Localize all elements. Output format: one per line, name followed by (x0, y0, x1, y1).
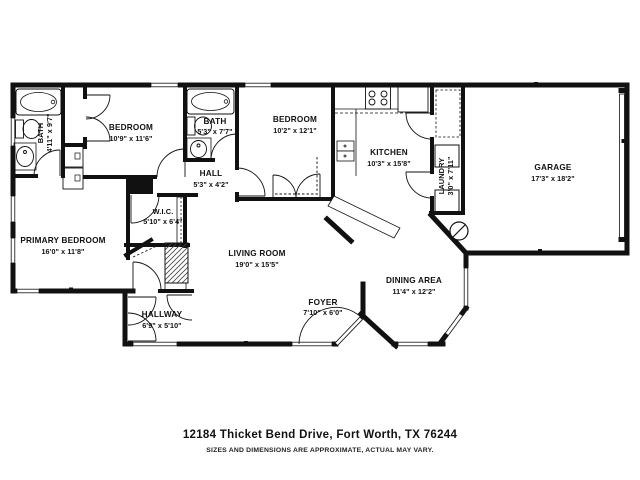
door-swing-primary-bedroom (133, 262, 161, 290)
svg-text:BEDROOM: BEDROOM (109, 123, 153, 132)
room-label-kitchen: KITCHEN 10'3" x 15'8" (367, 148, 411, 168)
room-label-living-room: LIVING ROOM 19'0" x 15'5" (228, 249, 285, 269)
room-label-bedroom-2: BEDROOM 10'2" x 12'1" (273, 115, 317, 135)
disclaimer-text: SIZES AND DIMENSIONS ARE APPROXIMATE, AC… (206, 447, 433, 454)
door-swing-bedroom-2 (237, 168, 265, 196)
fireplace-icon (165, 243, 188, 290)
closet-doors-bedroom-2 (273, 157, 320, 198)
svg-text:BATH: BATH (36, 123, 45, 143)
floor-plan: BATH 4'11" x 9'7" BEDROOM 10'9" x 11'6" … (0, 0, 640, 480)
door-swing-kitchen-lower (406, 172, 432, 198)
window (463, 268, 470, 306)
address-text: 12184 Thicket Bend Drive, Fort Worth, TX… (183, 429, 458, 441)
svg-text:LIVING ROOM: LIVING ROOM (228, 249, 285, 258)
svg-text:GARAGE: GARAGE (534, 163, 571, 172)
bathtub-icon (16, 89, 61, 115)
window (10, 238, 17, 263)
sink-icon (14, 143, 36, 170)
bathtub-icon (187, 89, 234, 114)
window (245, 82, 271, 89)
window (446, 314, 463, 335)
window (292, 341, 332, 348)
svg-text:5'3" x 7'7": 5'3" x 7'7" (197, 127, 232, 136)
svg-text:17'3" x 18'2": 17'3" x 18'2" (531, 174, 575, 183)
room-label-bedroom-1: BEDROOM 10'9" x 11'6" (109, 123, 153, 143)
svg-text:6'9" x 5'10": 6'9" x 5'10" (142, 321, 181, 330)
room-label-dining-area: DINING AREA 11'4" x 12'2" (386, 276, 442, 296)
svg-text:HALL: HALL (200, 169, 223, 178)
room-label-bath-2: BATH 5'3" x 7'7" (197, 117, 232, 136)
svg-text:7'10" x 6'0": 7'10" x 6'0" (303, 308, 342, 317)
svg-text:W.I.C.: W.I.C. (153, 207, 174, 216)
room-labels: BATH 4'11" x 9'7" BEDROOM 10'9" x 11'6" … (20, 113, 574, 330)
svg-text:HALLWAY: HALLWAY (142, 310, 183, 319)
door-swing-bath-2 (211, 134, 237, 160)
svg-text:19'0" x 15'5": 19'0" x 15'5" (235, 260, 279, 269)
wall-chunk (126, 176, 153, 194)
room-label-hallway: HALLWAY 6'9" x 5'10" (142, 310, 183, 330)
svg-text:10'9" x 11'6": 10'9" x 11'6" (109, 134, 152, 143)
window (398, 341, 428, 348)
svg-text:5'3" x 4'2": 5'3" x 4'2" (193, 180, 228, 189)
window (10, 196, 17, 222)
door-swing-bath-1 (34, 150, 60, 176)
window (133, 341, 177, 348)
footer: 12184 Thicket Bend Drive, Fort Worth, TX… (183, 429, 458, 454)
svg-text:11'4" x 12'2": 11'4" x 12'2" (392, 287, 435, 296)
garage-door (619, 88, 626, 242)
svg-text:DINING AREA: DINING AREA (386, 276, 442, 285)
svg-text:4'11" x 9'7": 4'11" x 9'7" (45, 113, 54, 152)
room-label-bath-1: BATH 4'11" x 9'7" (36, 113, 54, 152)
svg-text:16'0" x 11'8": 16'0" x 11'8" (41, 247, 84, 256)
window (151, 82, 178, 89)
room-label-primary-bedroom: PRIMARY BEDROOM 16'0" x 11'8" (20, 236, 105, 256)
floor-plan-canvas: BATH 4'11" x 9'7" BEDROOM 10'9" x 11'6" … (0, 0, 640, 480)
svg-text:PRIMARY BEDROOM: PRIMARY BEDROOM (20, 236, 105, 245)
svg-text:FOYER: FOYER (308, 298, 337, 307)
svg-text:LAUNDRY: LAUNDRY (437, 158, 446, 195)
sink-icon (187, 138, 211, 160)
room-label-hall: HALL 5'3" x 4'2" (193, 169, 228, 189)
svg-text:10'3" x 15'8": 10'3" x 15'8" (367, 159, 411, 168)
refrigerator-icon (398, 87, 428, 112)
room-label-foyer: FOYER 7'10" x 6'0" (303, 298, 342, 317)
svg-text:5'10" x 6'4": 5'10" x 6'4" (143, 217, 182, 226)
laundry-shelf (436, 90, 460, 137)
room-label-laundry: LAUNDRY 3'0" x 7'11" (437, 156, 455, 195)
stove-icon (366, 87, 391, 109)
svg-text:BEDROOM: BEDROOM (273, 115, 317, 124)
window (17, 288, 39, 295)
door-swing-kitchen-upper (406, 113, 432, 139)
svg-text:KITCHEN: KITCHEN (370, 148, 408, 157)
door-swing-bedroom-1 (157, 149, 185, 177)
water-heater-icon (450, 222, 468, 240)
room-label-garage: GARAGE 17'3" x 18'2" (531, 163, 575, 183)
closet-doors-hallway (128, 297, 156, 341)
windows (10, 82, 470, 348)
svg-text:BATH: BATH (204, 117, 227, 126)
closet-doors-bedroom-1 (86, 95, 110, 141)
svg-text:3'0" x 7'11": 3'0" x 7'11" (446, 156, 455, 195)
kitchen-counter (328, 109, 428, 238)
kitchen-sink-icon (337, 141, 354, 161)
svg-text:10'2" x 12'1": 10'2" x 12'1" (273, 126, 317, 135)
